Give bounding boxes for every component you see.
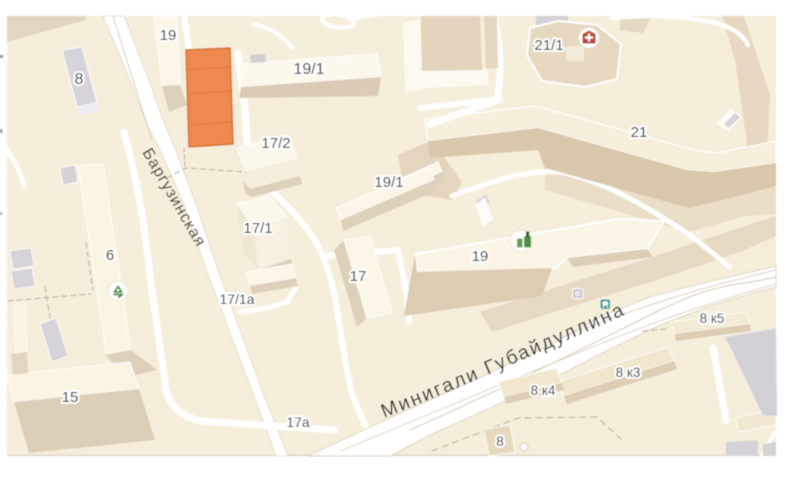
svg-text:21: 21 <box>631 124 648 141</box>
svg-text:21/1: 21/1 <box>534 37 563 54</box>
svg-text:19: 19 <box>160 27 177 44</box>
svg-text:8 к3: 8 к3 <box>616 365 641 380</box>
svg-text:17/2: 17/2 <box>261 135 290 152</box>
svg-text:15: 15 <box>62 389 79 406</box>
svg-text:17/1: 17/1 <box>243 220 272 237</box>
svg-text:8 к5: 8 к5 <box>700 311 725 326</box>
svg-text:19/1: 19/1 <box>374 174 403 191</box>
svg-text:17: 17 <box>350 268 367 285</box>
svg-text:8: 8 <box>496 434 504 449</box>
svg-text:19: 19 <box>472 248 489 265</box>
svg-text:17/1а: 17/1а <box>219 291 254 307</box>
svg-text:8 к4: 8 к4 <box>531 383 556 398</box>
svg-text:19/1: 19/1 <box>293 61 324 78</box>
svg-text:8: 8 <box>75 71 84 88</box>
svg-text:17а: 17а <box>286 414 310 430</box>
svg-text:6: 6 <box>106 247 114 264</box>
